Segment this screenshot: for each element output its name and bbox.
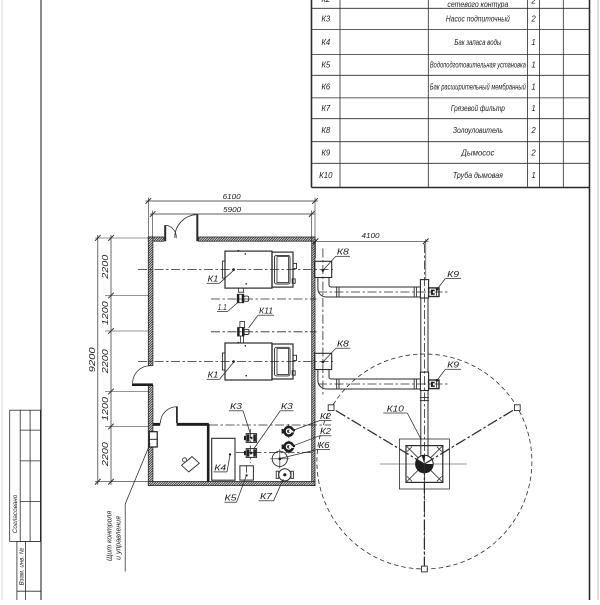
svg-text:К3: К3 [230,402,243,411]
svg-text:Насос подпиточный: Насос подпиточный [446,15,511,24]
svg-text:К10: К10 [387,404,405,413]
svg-text:6100: 6100 [223,192,241,201]
svg-text:К9: К9 [321,148,331,157]
svg-text:1: 1 [531,82,535,91]
svg-text:2: 2 [530,0,536,6]
svg-text:Грязевой фильтр: Грязевой фильтр [451,104,506,113]
svg-text:Щит контроля: Щит контроля [106,511,113,562]
svg-text:сетевого контура: сетевого контура [447,0,509,9]
svg-text:К11: К11 [259,307,273,316]
svg-text:1: 1 [531,61,535,70]
svg-text:К9: К9 [447,361,460,370]
svg-text:2: 2 [530,126,536,135]
svg-text:К5: К5 [225,494,238,503]
svg-text:и управления: и управления [116,516,123,560]
svg-text:2200: 2200 [101,348,110,374]
svg-text:К7: К7 [321,104,331,113]
svg-text:К9: К9 [447,270,460,279]
svg-text:К2: К2 [320,412,332,421]
svg-text:К6: К6 [319,441,331,450]
svg-text:1: 1 [531,38,535,47]
svg-text:1200: 1200 [101,396,110,421]
svg-text:Бак расширительный мембранный: Бак расширительный мембранный [430,82,526,91]
svg-text:К8: К8 [337,248,350,257]
svg-text:2: 2 [530,15,536,24]
svg-text:Взам. инв. №: Взам. инв. № [19,547,26,585]
svg-text:5900: 5900 [223,205,241,214]
svg-text:2200: 2200 [101,254,110,280]
svg-text:4100: 4100 [362,231,380,240]
svg-text:К7: К7 [260,492,273,501]
svg-text:Дымосос: Дымосос [460,148,494,157]
svg-text:К2: К2 [320,427,332,436]
svg-text:Согласовано: Согласовано [12,494,19,533]
svg-text:2: 2 [530,148,536,157]
svg-text:К1: К1 [208,371,219,380]
svg-text:К10: К10 [319,171,333,180]
svg-text:К1: К1 [208,275,219,284]
svg-text:1.1: 1.1 [218,303,227,312]
svg-text:К8: К8 [337,340,350,349]
svg-text:К2: К2 [321,0,331,4]
svg-text:1: 1 [531,104,535,113]
svg-text:К4: К4 [214,463,227,472]
svg-text:Водоподготовительная установка: Водоподготовительная установка [430,61,526,70]
svg-text:9200: 9200 [88,346,97,372]
svg-text:1: 1 [531,171,535,180]
svg-text:К5: К5 [321,61,331,70]
svg-text:Труба дымовая: Труба дымовая [453,171,504,180]
svg-text:К6: К6 [321,82,331,91]
svg-text:К8: К8 [321,126,331,135]
svg-text:К4: К4 [321,38,331,47]
svg-text:Золоуловитель: Золоуловитель [453,126,503,135]
svg-text:К3: К3 [281,402,294,411]
svg-text:1200: 1200 [101,300,110,325]
svg-text:К3: К3 [321,15,331,24]
svg-text:Бак запаса воды: Бак запаса воды [454,38,501,47]
svg-text:2200: 2200 [101,441,110,467]
